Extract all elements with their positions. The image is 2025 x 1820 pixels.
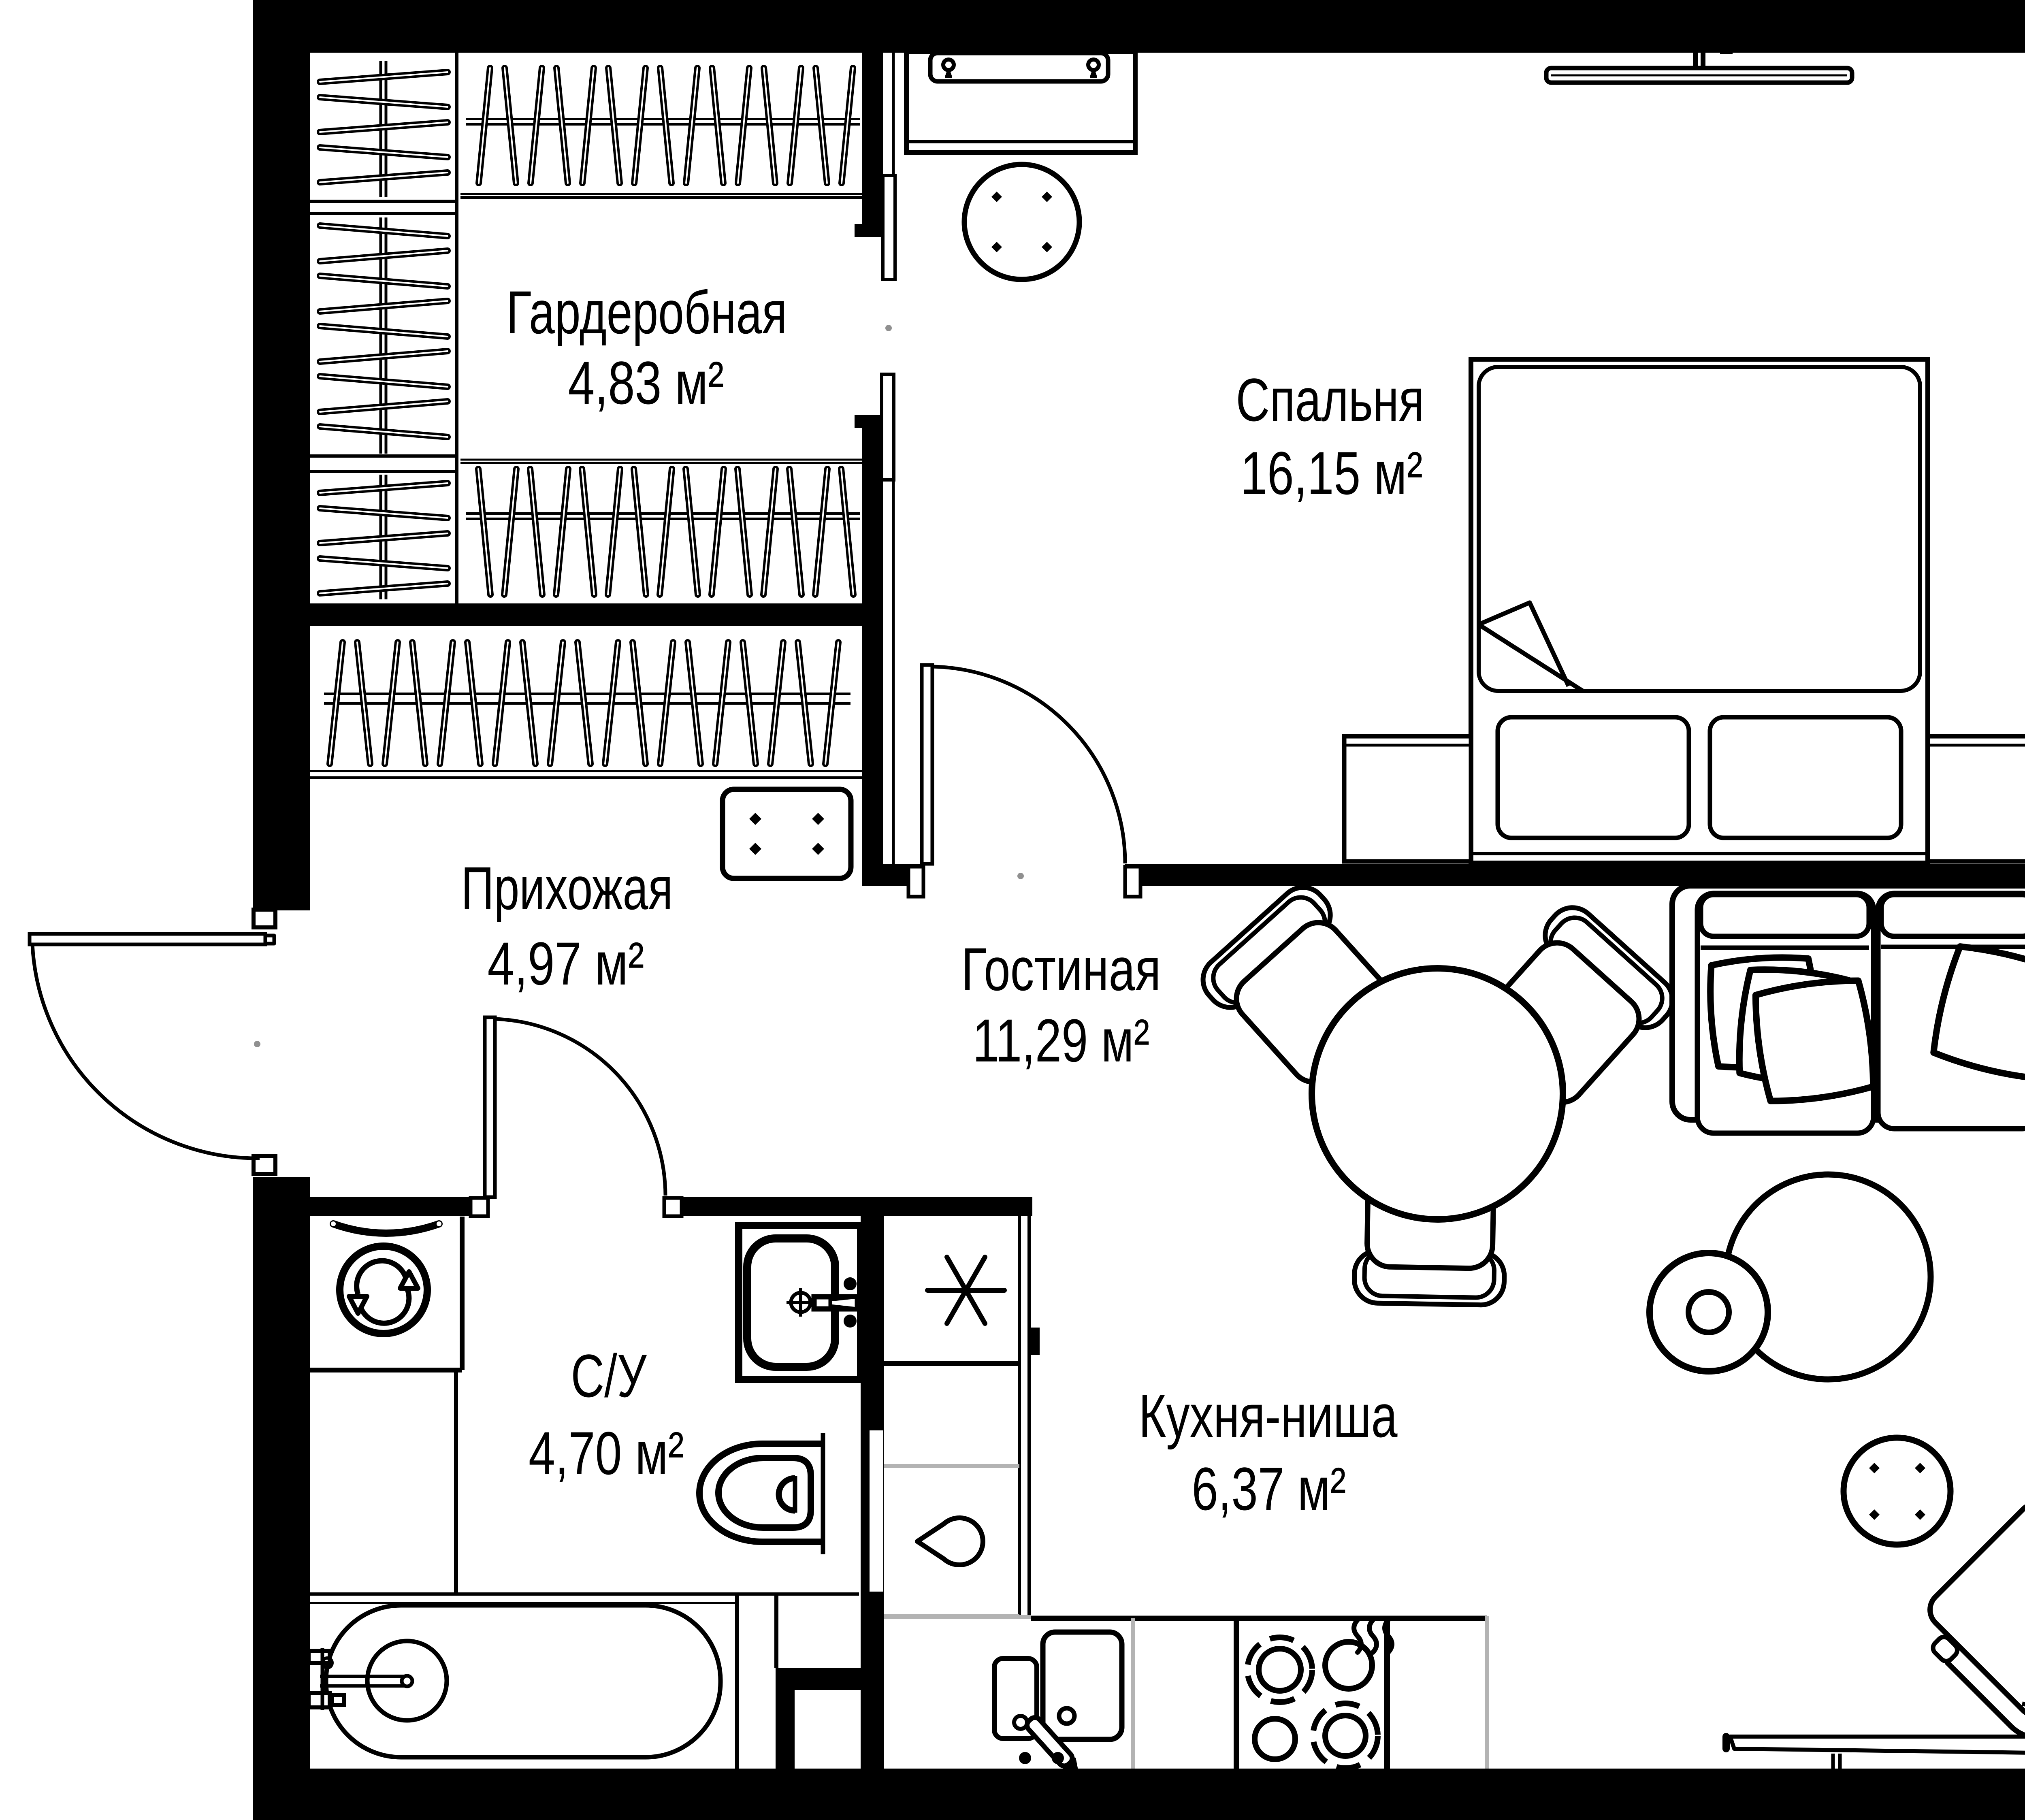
- svg-text:16,15 м²: 16,15 м²: [1241, 439, 1423, 507]
- svg-text:С/У: С/У: [571, 1342, 647, 1410]
- svg-text:11,29 м²: 11,29 м²: [973, 1006, 1150, 1074]
- svg-text:Кухня-ниша: Кухня-ниша: [1139, 1382, 1398, 1450]
- svg-text:Спальня: Спальня: [1236, 366, 1424, 434]
- svg-text:6,37 м²: 6,37 м²: [1192, 1455, 1346, 1523]
- svg-text:Прихожая: Прихожая: [461, 854, 673, 922]
- svg-text:4,83 м²: 4,83 м²: [568, 349, 724, 417]
- svg-text:4,97 м²: 4,97 м²: [488, 929, 644, 997]
- svg-text:4,70 м²: 4,70 м²: [529, 1419, 684, 1487]
- svg-text:Гостиная: Гостиная: [961, 935, 1161, 1003]
- svg-text:Гардеробная: Гардеробная: [507, 278, 787, 346]
